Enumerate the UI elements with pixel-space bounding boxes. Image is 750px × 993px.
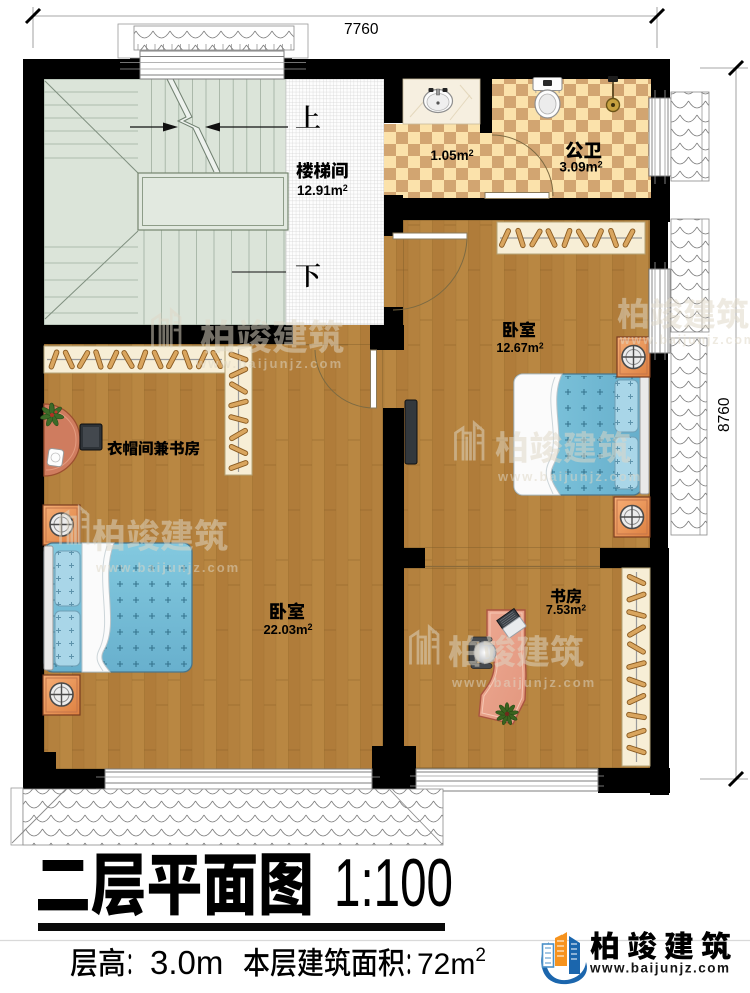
svg-text:1.05m2: 1.05m2	[430, 148, 473, 163]
svg-text:3.0m: 3.0m	[150, 944, 223, 981]
svg-text:www.baijunjz.com: www.baijunjz.com	[451, 675, 596, 690]
svg-text:22.03m2: 22.03m2	[263, 622, 312, 637]
svg-text:www.baijunjz.com: www.baijunjz.com	[195, 356, 343, 371]
svg-text:www.baijunjz.com: www.baijunjz.com	[95, 560, 240, 575]
svg-text:1:100: 1:100	[334, 845, 453, 921]
svg-text:7.53m2: 7.53m2	[546, 603, 586, 618]
svg-text:7760: 7760	[344, 21, 379, 38]
svg-text:3.09m2: 3.09m2	[559, 160, 602, 175]
svg-text:8760: 8760	[716, 397, 733, 432]
svg-text:12.67m2: 12.67m2	[496, 341, 543, 356]
svg-text:www.baijunjz.com: www.baijunjz.com	[589, 961, 731, 976]
svg-text:www.baijunjz.com: www.baijunjz.com	[497, 469, 642, 484]
svg-text:www.baijunjz.com: www.baijunjz.com	[619, 333, 750, 347]
svg-text:12.91m2: 12.91m2	[297, 183, 348, 198]
